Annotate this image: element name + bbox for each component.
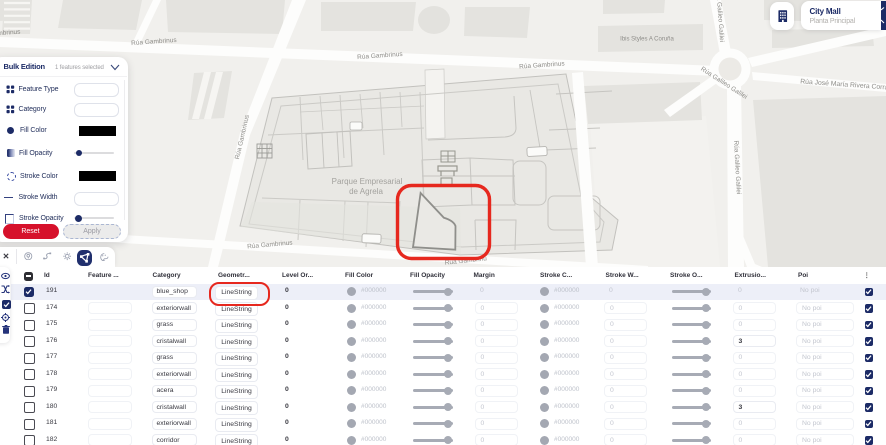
svg-text:Ibis Styles A Coruña: Ibis Styles A Coruña	[620, 37, 674, 43]
svg-text:de Agrela: de Agrela	[349, 187, 383, 196]
svg-text:Parque Empresarial: Parque Empresarial	[332, 177, 403, 186]
